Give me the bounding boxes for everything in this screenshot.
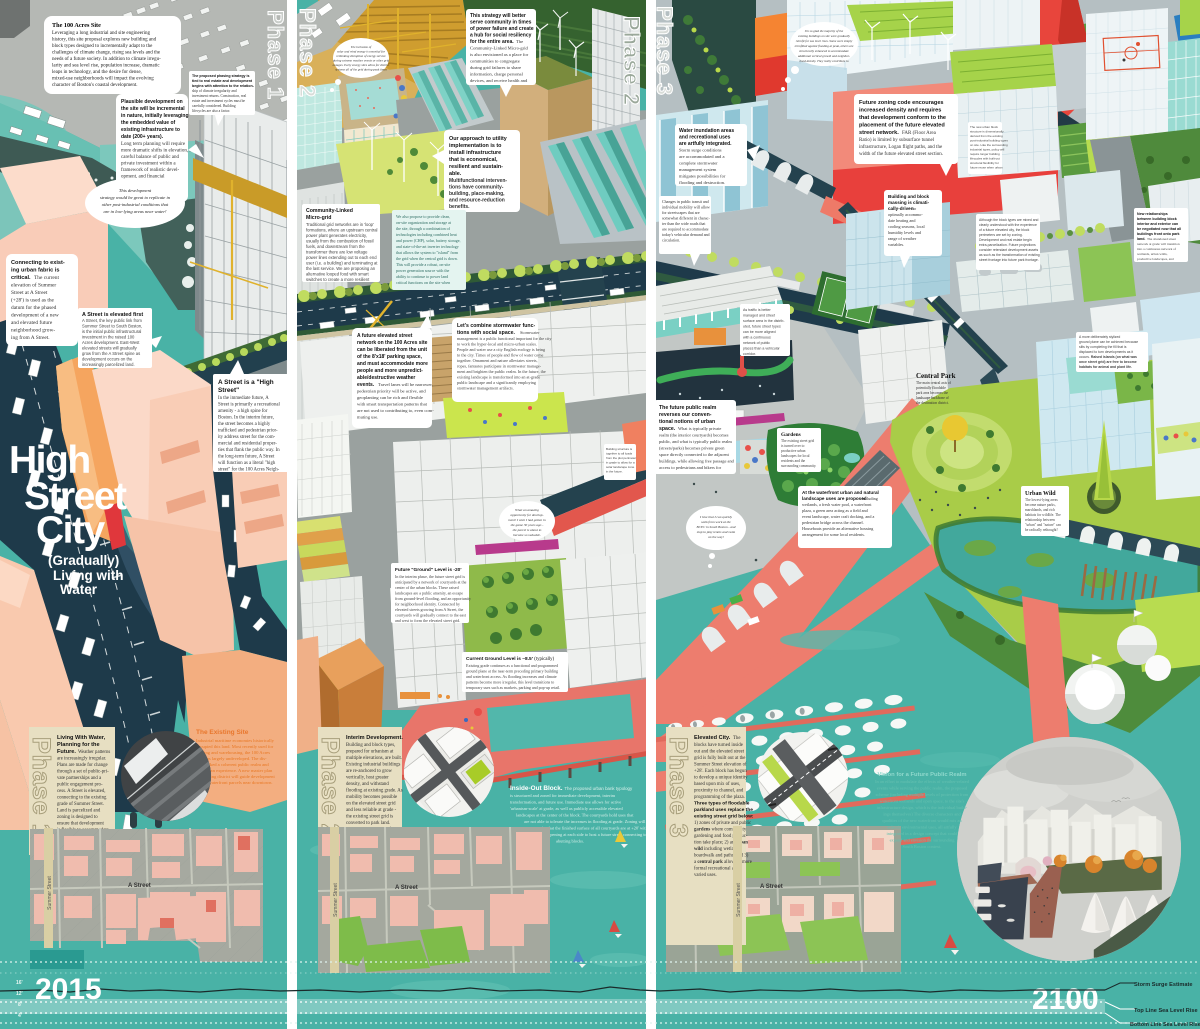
svg-text:to the city. Times of people a: to the city. Times of people and flow of…: [457, 353, 544, 358]
svg-text:able.: able.: [449, 171, 462, 177]
svg-text:leaps in technology, and the d: leaps in technology, and the desire for …: [52, 70, 142, 75]
svg-text:solar and wind energy is essen: solar and wind energy is essential for: [337, 50, 386, 54]
svg-text:This development: This development: [119, 188, 152, 193]
svg-text:solar landscape zone: solar landscape zone: [606, 465, 635, 469]
svg-text:begins with attention to the r: begins with attention to the relation-: [192, 84, 255, 88]
svg-text:perimeters are set by zoning.: perimeters are set by zoning.: [979, 233, 1023, 237]
svg-text:What an amazing: What an amazing: [515, 508, 539, 512]
svg-text:Summer Street to South Boston,: Summer Street to South Boston,: [82, 324, 142, 329]
svg-text:mixed-use neighborhoods will i: mixed-use neighborhoods will impact the …: [52, 77, 154, 82]
svg-text:connecting to the existing: connecting to the existing: [57, 796, 107, 801]
svg-text:cess. A Street is elevated,: cess. A Street is elevated,: [57, 789, 106, 794]
svg-text:Urban Wild: Urban Wild: [1025, 491, 1056, 497]
svg-text:As traffic is better: As traffic is better: [743, 308, 771, 312]
svg-text:estate and investment cycles m: estate and investment cycles must be: [192, 99, 245, 103]
svg-text:Storm Surge Estimate: Storm Surge Estimate: [1134, 982, 1192, 988]
svg-text:clearly understood with the ex: clearly understood with the experience: [979, 223, 1037, 227]
svg-text:A Street, the key public link: A Street, the key public link from: [82, 318, 142, 323]
svg-text:tions have community-: tions have community-: [449, 185, 504, 191]
svg-text:1) zones of private and public: 1) zones of private and public: [694, 821, 751, 826]
svg-text:are re-anchored to grow: are re-anchored to grow: [346, 769, 392, 774]
svg-text:"urban" and "nature" can: "urban" and "nature" can: [1025, 523, 1061, 527]
svg-text:framework of realistic devel-: framework of realistic devel-: [121, 168, 180, 173]
svg-text:(Gradually): (Gradually): [48, 553, 119, 568]
svg-text:vate partnerships and a: vate partnerships and a: [57, 776, 102, 781]
svg-text:habitats for wildlife. The: habitats for wildlife. The: [1025, 513, 1061, 517]
svg-text:variables.: variables.: [888, 242, 904, 247]
svg-text:buildings front onto park: buildings front onto park: [1137, 232, 1180, 236]
svg-text:somewhat different in charac-: somewhat different in charac-: [662, 216, 710, 221]
svg-text:the parcel is about to: the parcel is about to: [513, 528, 542, 532]
svg-text:of a future elevated city, the: of a future elevated city, the block: [979, 228, 1030, 232]
svg-text:The inclusion of: The inclusion of: [351, 45, 373, 49]
svg-text:a hub for social resiliency: a hub for social resiliency: [470, 33, 532, 39]
svg-text:investment in the raised 100: investment in the raised 100: [82, 335, 135, 340]
svg-text:uted, future street types: uted, future street types: [743, 325, 781, 329]
svg-text:productive urban: productive urban: [781, 449, 806, 453]
svg-text:programming of the plaza.: programming of the plaza.: [694, 795, 745, 800]
svg-text:from the plot perimeter: from the plot perimeter: [606, 456, 636, 460]
svg-text:development of a new: development of a new: [11, 312, 59, 319]
svg-text:landscapes for local: landscapes for local: [781, 454, 810, 458]
svg-text:What is typically private: What is typically private: [678, 426, 721, 431]
svg-text:Weather patterns: Weather patterns: [78, 750, 110, 755]
svg-text:humidity levels and: humidity levels and: [888, 230, 922, 235]
svg-text:more dramatic shifts in elevat: more dramatic shifts in elevation, a: [121, 149, 192, 154]
svg-text:alternative looped food with s: alternative looped food with smart: [306, 272, 369, 277]
svg-text:private investment within a: private investment within a: [121, 162, 176, 167]
svg-text:qualities of the new waterfron: qualities of the new waterfront would mi…: [882, 818, 962, 823]
svg-text:ground plane at the near-term: ground plane at the near-term preceding …: [466, 669, 558, 674]
svg-text:South Boston context.: South Boston context.: [903, 844, 942, 849]
svg-text:Building structure is: Building structure is: [606, 447, 633, 451]
svg-text:converted to park land.: converted to park land.: [346, 821, 390, 826]
svg-text:are not able to tolerate the i: are not able to tolerate the increases i…: [524, 819, 646, 824]
svg-text:courtyards will gradually conn: courtyards will gradually connect to the…: [395, 613, 467, 618]
svg-text:development occurs on the: development occurs on the: [82, 357, 133, 362]
svg-text:expand and envision the surrou: expand and envision the surrounding: [890, 838, 956, 843]
svg-text:Living with: Living with: [53, 568, 124, 583]
svg-text:2015: 2015: [35, 973, 102, 1006]
svg-text:I'm so glad the majority of th: I'm so glad the majority of the: [804, 29, 844, 33]
svg-text:anticipated by a network of co: anticipated by a network of courtyards a…: [395, 580, 467, 585]
svg-text:The new urban block: The new urban block: [970, 125, 998, 129]
svg-text:grow from the A Street spine a: grow from the A Street spine as: [82, 351, 140, 356]
svg-text:including: including: [862, 496, 879, 501]
svg-text:Elevated City.: Elevated City.: [694, 735, 731, 741]
svg-text:tional notions of urban: tional notions of urban: [659, 419, 715, 425]
svg-text:residents and the: residents and the: [781, 459, 806, 463]
svg-text:access to pedestrians and bike: access to pedestrians and bikers for: [659, 465, 722, 470]
svg-text:out and the elevated street: out and the elevated street: [694, 750, 745, 755]
svg-text:the grid when the central grid: the grid when the central grid is down.: [396, 256, 458, 261]
svg-text:landscape uses are proposed: landscape uses are proposed: [802, 496, 867, 501]
svg-text:Top Line Sea Level Rise: Top Line Sea Level Rise: [1134, 1008, 1198, 1014]
svg-text:outages. Early energy sites al: outages. Early energy sites allow for di…: [333, 63, 390, 67]
svg-text:BCEC in South Boston - and: BCEC in South Boston - and: [697, 525, 736, 529]
svg-text:tied to real estate and develo: tied to real estate and development: [192, 79, 253, 83]
svg-text:walk from work at the: walk from work at the: [701, 520, 731, 524]
svg-text:the last service. We are propo: the last service. We are proposing an: [306, 266, 376, 271]
svg-text:fuels, and downstream from the: fuels, and downstream from the: [306, 244, 365, 249]
svg-text:with a continuous: with a continuous: [743, 336, 771, 340]
svg-text:existing buildings on site wer: existing buildings on site were graduall…: [798, 34, 850, 38]
svg-text:space directly connected to th: space directly connected to the adjacent: [659, 452, 730, 457]
svg-text:are increasingly irregular.: are increasingly irregular.: [57, 757, 106, 762]
svg-text:center of the urban blocks. Th: center of the urban blocks. These raised: [395, 585, 459, 590]
svg-text:into a continuous network of: into a continuous network of: [1137, 247, 1177, 251]
svg-text:Acres development. East-West: Acres development. East-West: [82, 340, 140, 345]
svg-text:Phase 2: Phase 2: [316, 737, 344, 839]
svg-text:individual mobility will allow: individual mobility will allow: [662, 205, 710, 210]
svg-text:In the immediate future, A: In the immediate future, A: [218, 396, 269, 401]
svg-text:The Existing Site: The Existing Site: [196, 729, 249, 736]
svg-text:infrastructure, Logan flight p: infrastructure, Logan flight paths, and …: [859, 145, 943, 150]
svg-text:ability to continue to power l: ability to continue to power land: [396, 274, 448, 279]
svg-text:for the entire area.: for the entire area.: [470, 39, 514, 45]
svg-text:that development conform to th: that development conform to the: [859, 115, 946, 121]
svg-text:on site. Like the surrounding: on site. Like the surrounding: [970, 143, 1008, 147]
svg-text:other post-industrial conditio: other post-industrial conditions that: [102, 202, 169, 207]
svg-text:People and water use a city En: People and water use a city English ecol…: [457, 347, 546, 352]
svg-text:be negotiated now that all: be negotiated now that all: [1137, 227, 1181, 231]
svg-text:geoplanting can be rich and fl: geoplanting can be rich and flexible: [357, 395, 423, 400]
svg-text:and west to form the elevated: and west to form the elevated street gri…: [395, 618, 460, 623]
svg-text:placement of the future elevat: placement of the future elevated: [859, 123, 945, 129]
svg-text:and less reliable at grade -: and less reliable at grade -: [346, 808, 397, 813]
svg-text:landscape backbone of: landscape backbone of: [916, 396, 950, 400]
svg-text:Long term planning will requir: Long term planning will require: [121, 142, 186, 147]
svg-text:Current Ground Level is ~8.5': Current Ground Level is ~8.5' (typically…: [466, 656, 555, 662]
svg-text:is turned over to: is turned over to: [781, 444, 805, 448]
svg-text:Plausible development on: Plausible development on: [121, 99, 183, 105]
svg-text:Water: Water: [60, 582, 98, 597]
svg-text:scheme (including multiple lev: scheme (including multiple levels of pro…: [876, 792, 969, 797]
svg-text:Let's combine stormwater func-: Let's combine stormwater func-: [457, 323, 535, 329]
svg-text:opening at each side to host a: opening at each side to host a future st…: [548, 832, 648, 837]
svg-text:Storm surge conditions: Storm surge conditions: [679, 148, 722, 153]
svg-text:neighborhood grow-: neighborhood grow-: [11, 328, 55, 334]
svg-text:cally-driven: cally-driven: [888, 206, 914, 211]
svg-text:block types designed to increm: block types designed to incrementally ad…: [52, 44, 153, 49]
svg-text:stop to play tennis and swim: stop to play tennis and swim: [697, 530, 736, 534]
svg-text:ter than the wide roads that: ter than the wide roads that: [662, 221, 706, 226]
svg-text:A Street is a "High: A Street is a "High: [218, 379, 274, 386]
svg-text:Community-Linked: Community-Linked: [306, 208, 353, 214]
svg-text:is also envisioned as a place: is also envisioned as a place for: [470, 52, 529, 57]
svg-text:as such as the transformation: as such as the transformation of existin…: [979, 253, 1040, 257]
svg-text:Land is parcelized and: Land is parcelized and: [57, 809, 101, 814]
svg-text:once street grid) are free to: once street grid) are free to become: [1079, 360, 1137, 364]
svg-text:the site will be incremental: the site will be incremental: [121, 106, 185, 112]
svg-text:ings themselves) The diverse c: ings themselves) The diverse characters …: [883, 812, 961, 817]
svg-text:in nature, initially leveragin: in nature, initially leveraging: [121, 113, 189, 119]
svg-text:A future elevated street: A future elevated street: [357, 333, 413, 339]
svg-text:Plans are made for change: Plans are made for change: [57, 763, 108, 768]
svg-text:formations, where an upstream: formations, where an upstream central: [306, 228, 378, 233]
svg-text:relationship between: relationship between: [1025, 518, 1055, 522]
svg-text:industrial types, policy will: industrial types, policy will: [970, 148, 1005, 152]
svg-text:date heating and: date heating and: [888, 218, 916, 223]
svg-text:Although the block types are m: Although the block types are mixed and: [979, 218, 1038, 222]
svg-text:street" for the 100 Acres Neig: street" for the 100 Acres Neigh-: [218, 468, 280, 473]
svg-text:mercial and residential proper: mercial and residential proper-: [218, 442, 277, 447]
svg-text:can be more aligned: can be more aligned: [743, 330, 776, 334]
svg-text:on the way!: on the way!: [708, 535, 724, 539]
svg-text:flooding at existing grade. As: flooding at existing grade. As: [346, 789, 403, 794]
svg-text:will function as a literal "hi: will function as a literal "high: [218, 461, 276, 466]
svg-text:transformer there are low volt: transformer there are low voltage: [306, 250, 368, 255]
svg-text:a central park allowing more: a central park allowing more: [694, 860, 752, 865]
svg-text:corridor.: corridor.: [743, 352, 756, 356]
svg-text:the existing street grid is: the existing street grid is: [346, 815, 393, 820]
svg-text:integrated in a design concept: integrated in a design concept that coul…: [887, 831, 959, 836]
svg-text:circulation.: circulation.: [662, 238, 680, 243]
svg-text:Summer Street elevation of: Summer Street elevation of: [694, 763, 747, 768]
svg-text:multiple elevations, are built: multiple elevations, are built.: [346, 756, 402, 761]
svg-text:the embedded value of: the embedded value of: [121, 120, 176, 126]
svg-text:Summer Street: Summer Street: [736, 883, 742, 917]
svg-text:Existing grade continues as a: Existing grade continues as a functional…: [466, 663, 558, 668]
svg-text:grade of Summer Street.: grade of Summer Street.: [57, 802, 104, 807]
svg-text:ing urban fabric is: ing urban fabric is: [11, 268, 60, 274]
svg-text:pedestrian bridge across the c: pedestrian bridge across the channel.: [802, 520, 864, 525]
svg-text:history, this site proposal ex: history, this site proposal explores new…: [52, 38, 157, 43]
svg-text:parkland uses replace the: parkland uses replace the: [694, 807, 753, 813]
svg-text:managed and street: managed and street: [743, 314, 775, 318]
svg-text:abutting blocks.: abutting blocks.: [556, 839, 584, 844]
svg-text:Street": Street": [218, 387, 239, 394]
svg-text:Multifunctional interven-: Multifunctional interven-: [449, 178, 507, 184]
svg-text:implementation is to: implementation is to: [449, 143, 502, 149]
svg-text:Three types of floodable: Three types of floodable: [694, 801, 750, 807]
svg-text:Phase 2: Phase 2: [295, 8, 320, 98]
svg-text:are in low-lying areas near wa: are in low-lying areas near water!: [103, 209, 167, 214]
svg-text:opportunity for develop-: opportunity for develop-: [510, 513, 543, 517]
svg-text:In an effort to modulate the e: In an effort to modulate the effects of …: [875, 779, 970, 784]
svg-text:Future "Ground" Level is -20': Future "Ground" Level is -20': [395, 567, 461, 573]
svg-text:This strategy will better: This strategy will better: [470, 13, 526, 19]
svg-text:are required to accommodate: are required to accommodate: [662, 227, 709, 232]
svg-text:strategy would be great to rep: strategy would be great to replicate in: [100, 195, 171, 200]
svg-text:trafficked and pedestrian prio: trafficked and pedestrian prior-: [218, 429, 278, 434]
svg-text:extra-parcelization. Future pr: extra-parcelization. Future projections: [979, 243, 1036, 247]
svg-text:able/destructive weather: able/destructive weather: [357, 375, 415, 381]
svg-text:The current: The current: [34, 275, 59, 281]
svg-text:serve community in times: serve community in times: [470, 20, 532, 26]
svg-text:blocks have turned inside: blocks have turned inside: [694, 743, 743, 748]
svg-text:benefits.: benefits.: [449, 204, 470, 210]
svg-text:A Street: A Street: [760, 884, 783, 890]
svg-text:varied uses.: varied uses.: [694, 873, 717, 878]
svg-text:management system: management system: [679, 167, 717, 172]
svg-text:critical.: critical.: [11, 275, 31, 281]
svg-text:ship of climate irregularity a: ship of climate irregularity and: [192, 89, 237, 93]
svg-text:+28'. Each block has begun: +28'. Each block has begun: [694, 769, 747, 774]
svg-text:and recreational uses: and recreational uses: [679, 135, 731, 141]
svg-text:existing street grid below:: existing street grid below:: [694, 814, 754, 820]
svg-text:in the future.: in the future.: [606, 470, 623, 474]
svg-text:12': 12': [16, 991, 23, 997]
svg-text:based upon mix of uses,: based upon mix of uses,: [694, 782, 740, 787]
svg-text:stormwater management artifact: stormwater management artifacts.: [457, 386, 514, 391]
svg-text:street frontage into future pa: street frontage into future park frontag…: [979, 258, 1039, 262]
svg-text:width of the future elevated s: width of the future elevated street sect…: [859, 152, 943, 157]
svg-text:network of public: network of public: [743, 341, 770, 345]
svg-text:ties that flank the public way: ties that flank the public way. In: [218, 448, 280, 453]
svg-text:I love that I can quickly: I love that I can quickly: [699, 515, 733, 519]
svg-text:Micro-grid: Micro-grid: [306, 215, 331, 221]
svg-text:16': 16': [16, 980, 23, 986]
svg-text:Interim Development.: Interim Development.: [346, 735, 403, 741]
svg-text:ment! I wish I had gotten in: ment! I wish I had gotten in: [508, 518, 546, 522]
svg-text:and waterfront access. As floo: and waterfront access. As flooding incre…: [466, 674, 557, 679]
svg-text:technologies including combine: technologies including combined heat: [396, 232, 458, 237]
svg-text:mitigates possibilities for: mitigates possibilities for: [679, 174, 726, 179]
svg-text:Boston. In the interim future,: Boston. In the interim future,: [218, 416, 274, 421]
svg-text:Future.: Future.: [57, 749, 76, 755]
svg-text:between building block: between building block: [1137, 217, 1177, 221]
svg-text:optimally accommo-: optimally accommo-: [888, 212, 923, 217]
svg-text:resilient and sustain-: resilient and sustain-: [449, 164, 503, 170]
svg-text:hood density. They really cont: hood density. They really contribute to: [799, 59, 849, 63]
svg-text:zoning is designed to: zoning is designed to: [57, 815, 98, 820]
svg-text:that allows the system to "isl: that allows the system to "island" from: [396, 250, 459, 255]
svg-text:require longer building: require longer building: [970, 152, 1000, 156]
svg-text:density, and withstand: density, and withstand: [346, 782, 389, 787]
svg-text:(+28') is used as the: (+28') is used as the: [11, 297, 55, 304]
svg-text:existing infrastructure to: existing infrastructure to: [121, 127, 180, 133]
svg-text:events.: events.: [357, 382, 375, 388]
svg-text:datum for the phased: datum for the phased: [11, 304, 57, 311]
svg-text:structurally enhanced to accom: structurally enhanced to accommodate: [799, 49, 849, 53]
svg-text:Houseboats provide an alternat: Houseboats provide an alternative housin…: [802, 526, 874, 531]
svg-text:install infrastructure: install infrastructure: [449, 150, 501, 156]
svg-text:public landscape and a signifi: public landscape and a significantly emp…: [457, 380, 537, 385]
svg-text:displaced to turn developments: displaced to turn developments as it: [1079, 350, 1133, 354]
svg-text:habitats for animal and plant: habitats for animal and plant life.: [1079, 365, 1132, 369]
svg-text:New relationships: New relationships: [1137, 212, 1168, 216]
svg-text:network on the 100 Acres site: network on the 100 Acres site: [357, 340, 428, 346]
svg-text:with smart transportation patt: with smart transportation patterns that: [357, 402, 428, 407]
svg-text:Summer Street: Summer Street: [47, 876, 53, 910]
svg-text:The main central axis of: The main central axis of: [916, 381, 952, 385]
svg-text:Planning for the: Planning for the: [57, 742, 100, 748]
svg-text:existing landscape is transfor: existing landscape is transformed into a…: [457, 375, 540, 380]
svg-text:mobility becomes possible: mobility becomes possible: [346, 795, 397, 800]
svg-text:consider retendant development: consider retendant development assets: [979, 248, 1038, 252]
svg-text:A Street: A Street: [395, 885, 418, 891]
svg-text:Phase 2: Phase 2: [619, 16, 644, 106]
svg-text:needs of a future society. In: needs of a future society. In addition t…: [52, 57, 161, 62]
svg-text:people and more unpredict-: people and more unpredict-: [357, 368, 423, 374]
svg-text:increased density and requires: increased density and requires: [859, 108, 941, 114]
svg-text:larity and sea level rise, pop: larity and sea level rise, population in…: [52, 64, 160, 69]
svg-text:that is economical,: that is economical,: [449, 157, 498, 163]
svg-text:landscapes at the center of th: landscapes at the center of the block. T…: [516, 813, 634, 818]
svg-text:and must accommodate more: and must accommodate more: [357, 361, 428, 367]
svg-text:Stormwater: Stormwater: [520, 330, 540, 335]
svg-text:surrounding community.: surrounding community.: [781, 464, 816, 468]
svg-text:A more deliberately stylized: A more deliberately stylized: [1079, 335, 1120, 339]
svg-text:4': 4': [18, 1013, 22, 1019]
svg-text:Street at A Street: Street at A Street: [11, 290, 48, 296]
svg-text:Central Park: Central Park: [916, 372, 956, 380]
svg-text:potentially floodable: potentially floodable: [916, 386, 946, 390]
svg-text:additional vertical growth and: additional vertical growth and neighbor-: [798, 54, 850, 58]
svg-text:in grade to allow for a: in grade to allow for a: [606, 461, 635, 465]
svg-text:derived from the existing: derived from the existing: [970, 134, 1003, 138]
svg-text:massing is climati-: massing is climati-: [888, 200, 930, 205]
svg-text:on-site organization and stora: on-site organization and storage at: [396, 220, 452, 225]
svg-text:FAR (Floor Area: FAR (Floor Area: [902, 131, 937, 136]
svg-text:building, place-making,: building, place-making,: [449, 191, 505, 197]
svg-text:elevated streets will graduall: elevated streets will gradually: [82, 346, 138, 351]
svg-text:the destination district.: the destination district.: [916, 401, 949, 405]
svg-text:(streets/parks) becomes privat: (streets/parks) becomes private green: [659, 446, 725, 451]
svg-text:amenity - a high spine for: amenity - a high spine for: [218, 409, 268, 414]
svg-text:occurs. Raised islands (on wha: occurs. Raised islands (on what was: [1079, 355, 1137, 359]
svg-text:interior and exterior can: interior and exterior can: [1137, 222, 1178, 226]
svg-text:character of Boston's coastal: character of Boston's coastal developmen…: [52, 83, 137, 88]
svg-text:communities to congregate: communities to congregate: [470, 59, 520, 64]
svg-text:Industrial maritime economies: Industrial maritime economies historical…: [196, 738, 275, 743]
svg-text:vertically, host greater: vertically, host greater: [346, 776, 389, 781]
svg-text:A Street: A Street: [128, 883, 151, 889]
svg-text:lifecycles are also a factor.: lifecycles are also a factor.: [192, 109, 230, 113]
svg-text:The abandoned street: The abandoned street: [1147, 237, 1176, 241]
svg-text:The proposed phasing strategy: The proposed phasing strategy is: [192, 74, 250, 78]
svg-text:ity address street for the com: ity address street for the com-: [218, 435, 276, 440]
svg-text:to work the hyper-local and mi: to work the hyper-local and micro-urban …: [457, 342, 537, 347]
svg-text:critical functions on the site: critical functions on the site when: [396, 280, 450, 285]
svg-text:ing from A Street.: ing from A Street.: [11, 334, 50, 341]
svg-text:of power failure and create: of power failure and create: [470, 26, 534, 32]
svg-text:the street becomes a highly: the street becomes a highly: [218, 422, 271, 427]
svg-text:space.: space.: [659, 426, 676, 432]
svg-text:retrofit for sea level rises.: retrofit for sea level rises. Some were …: [796, 39, 853, 43]
svg-text:usually from the combustion of: usually from the combustion of fossil: [306, 239, 374, 244]
svg-text:Phase 3: Phase 3: [664, 737, 692, 839]
svg-text:management is a public functio: management is a public functional import…: [457, 336, 552, 341]
svg-text:become so valuable.: become so valuable.: [513, 533, 541, 537]
svg-text:are accommodated and a: are accommodated and a: [679, 154, 725, 159]
svg-text:Water inundation areas: Water inundation areas: [679, 128, 734, 134]
svg-text:muting use.: muting use.: [357, 415, 378, 420]
svg-text:occupied this land. Most recen: occupied this land. Most recently used f…: [196, 744, 274, 749]
svg-text:Development and real estate be: Development and real estate begin: [979, 238, 1032, 242]
svg-text:the game 30 years ago -: the game 30 years ago -: [511, 523, 544, 527]
svg-text:structural flexibility for: structural flexibility for: [970, 161, 999, 165]
svg-text:user (i.e. a building) and ter: user (i.e. a building) and terminating a…: [306, 261, 378, 266]
svg-text:places than a vehicular: places than a vehicular: [743, 347, 781, 351]
svg-text:Inside-Out Block. The proposed: Inside-Out Block. The proposed urban ban…: [510, 785, 633, 792]
svg-text:during grid failures to share: during grid failures to share: [470, 65, 521, 70]
svg-text:reverses our conven-: reverses our conven-: [659, 412, 712, 418]
svg-text:grid is fully built out at the: grid is fully built out at the: [694, 756, 745, 761]
svg-text:Living With Water,: Living With Water,: [57, 735, 106, 741]
svg-text:elevation of Summer: elevation of Summer: [11, 282, 56, 289]
svg-text:today's vehicular demand and: today's vehicular demand and: [662, 232, 709, 237]
svg-text:power plant generates electric: power plant generates electricity,: [306, 233, 367, 238]
svg-text:on the elevated street grid: on the elevated street grid: [346, 802, 396, 807]
svg-text:network at grade will transiti: network at grade will transition: [1137, 242, 1180, 246]
svg-text:Community-Linked Micro-grid: Community-Linked Micro-grid: [470, 46, 528, 51]
svg-text:structure is dimensionally: structure is dimensionally: [970, 130, 1004, 134]
svg-text:Building and block: Building and block: [888, 194, 930, 199]
svg-text:The existing street grid: The existing street grid: [781, 439, 814, 443]
svg-text:are artfully integrated.: are artfully integrated.: [679, 141, 732, 147]
